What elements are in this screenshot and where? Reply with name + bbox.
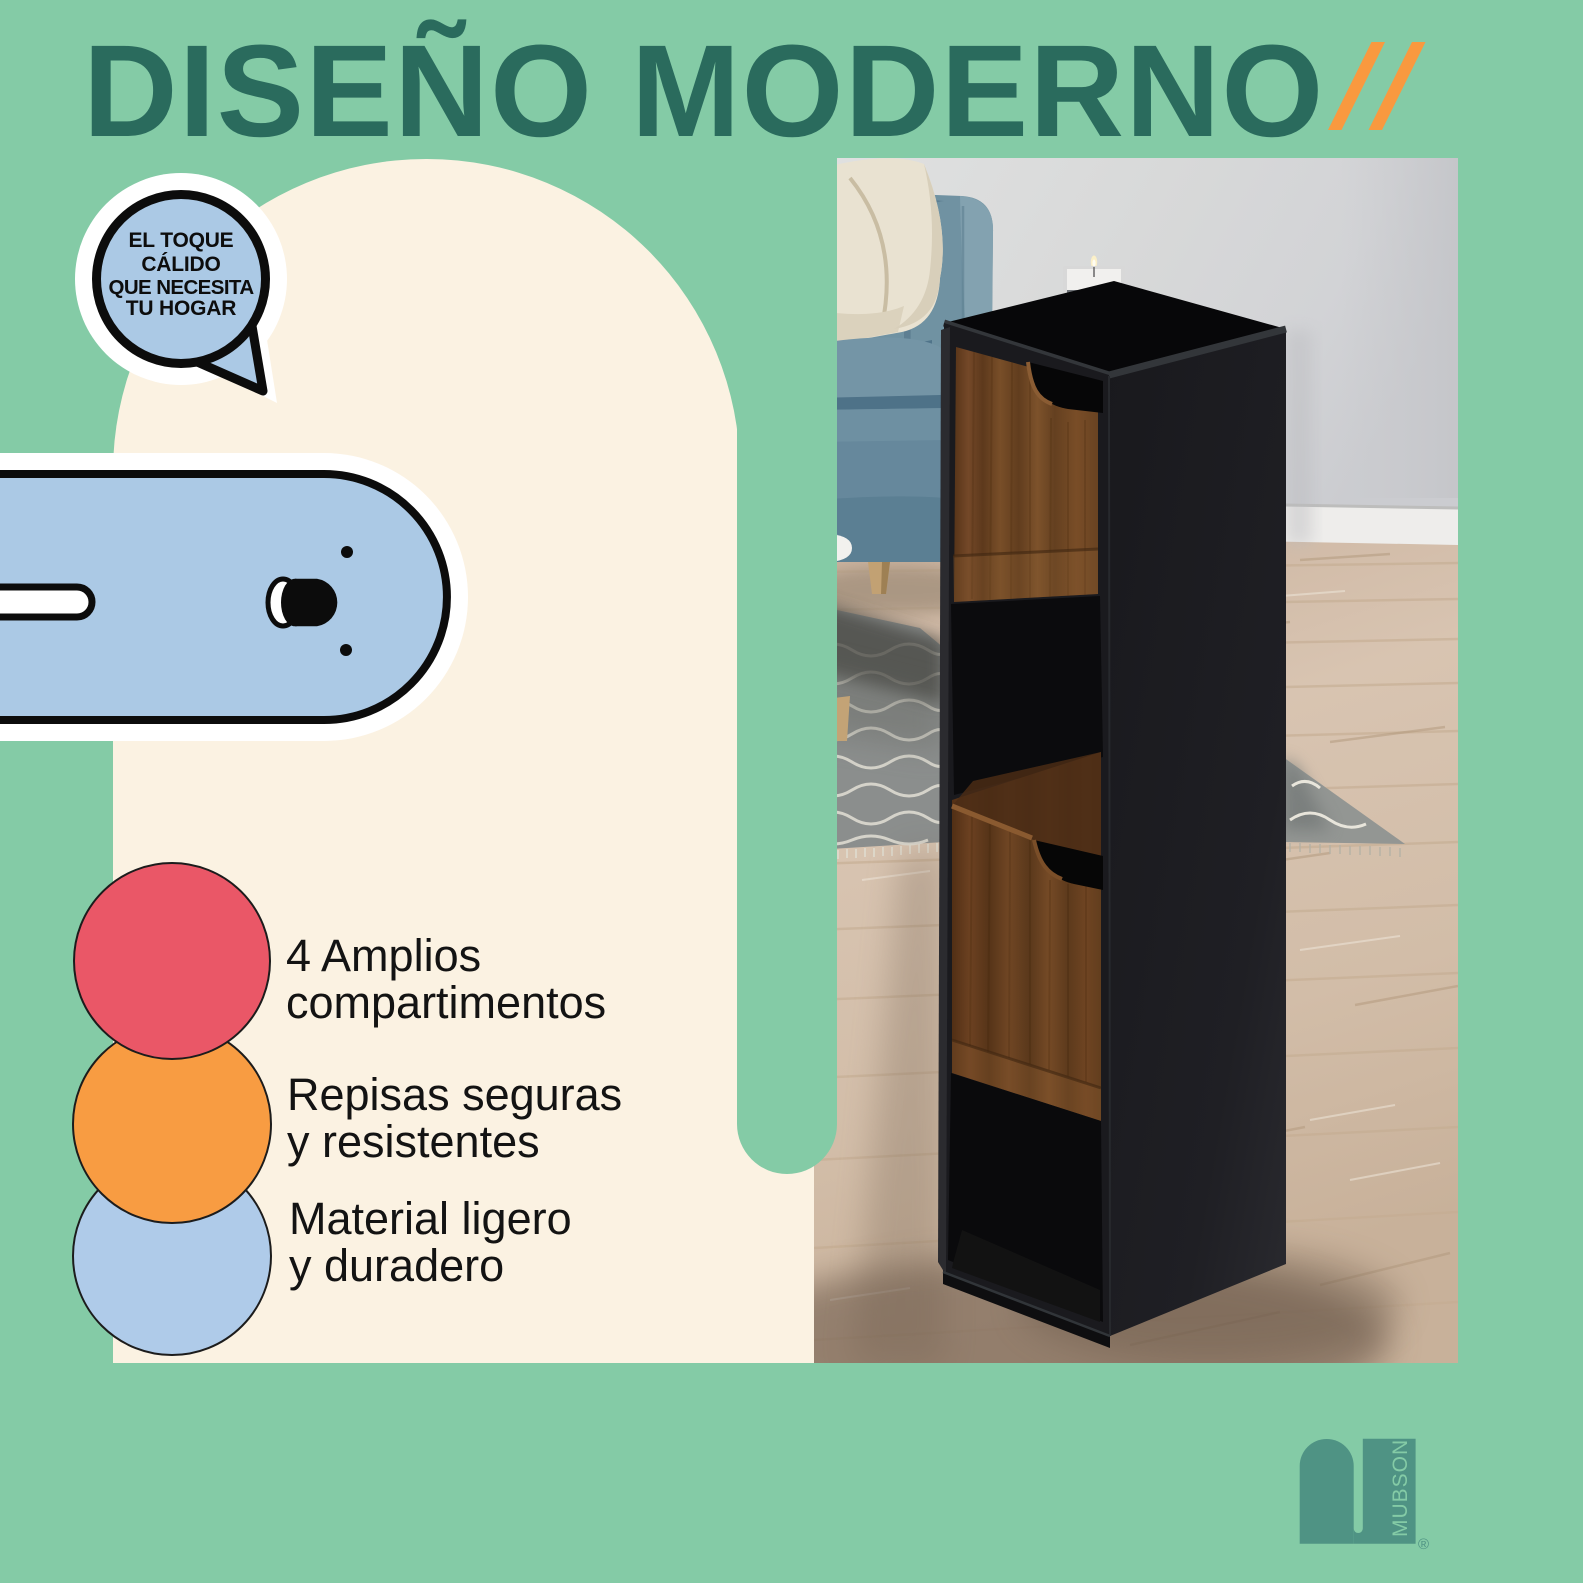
svg-text:TU HOGAR: TU HOGAR <box>126 297 236 320</box>
svg-text:CÁLIDO: CÁLIDO <box>141 253 220 276</box>
svg-text:EL TOQUE: EL TOQUE <box>129 229 234 252</box>
svg-text:MUBSON: MUBSON <box>1389 1439 1412 1537</box>
svg-text:®: ® <box>1418 1536 1429 1553</box>
svg-text:QUE NECESITA: QUE NECESITA <box>108 276 254 299</box>
